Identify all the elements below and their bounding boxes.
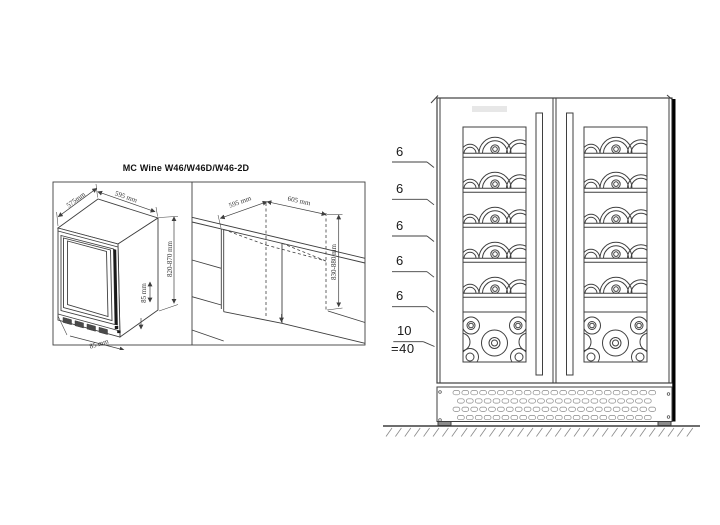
- ground-line: [383, 426, 700, 437]
- shelf-count-5: 6: [396, 288, 403, 303]
- front-view-capacity-drawing: [380, 80, 720, 450]
- niche-dimension-lines: [218, 202, 343, 322]
- control-display: [472, 106, 507, 112]
- dim-niche-height: 830-880 mm: [330, 244, 338, 280]
- shelf-count-4: 6: [396, 253, 403, 268]
- plinth-grille: [437, 387, 672, 426]
- shelf-count-1: 6: [396, 144, 403, 159]
- right-door-handle: [567, 113, 574, 375]
- shelf-count-3: 6: [396, 218, 403, 233]
- right-foot: [658, 422, 671, 426]
- model-title: MC Wine W46/W46D/W46-2D: [86, 163, 286, 173]
- left-door-handle: [536, 113, 543, 375]
- dim-unit-plinth-height: 85 mm: [140, 283, 148, 303]
- shelf-count-bottom: 10: [397, 323, 411, 338]
- unit-isometric: [58, 199, 158, 337]
- left-foot: [438, 422, 451, 426]
- wine-cooler-spec-sheet: MC Wine W46/W46D/W46-2D 575mm 595 mm 820…: [0, 0, 720, 525]
- total-bottle-count: =40: [391, 341, 415, 356]
- installation-dimensions-drawing: [50, 178, 370, 350]
- shelf-count-2: 6: [396, 181, 403, 196]
- dim-unit-height: 820-870 mm: [166, 241, 174, 277]
